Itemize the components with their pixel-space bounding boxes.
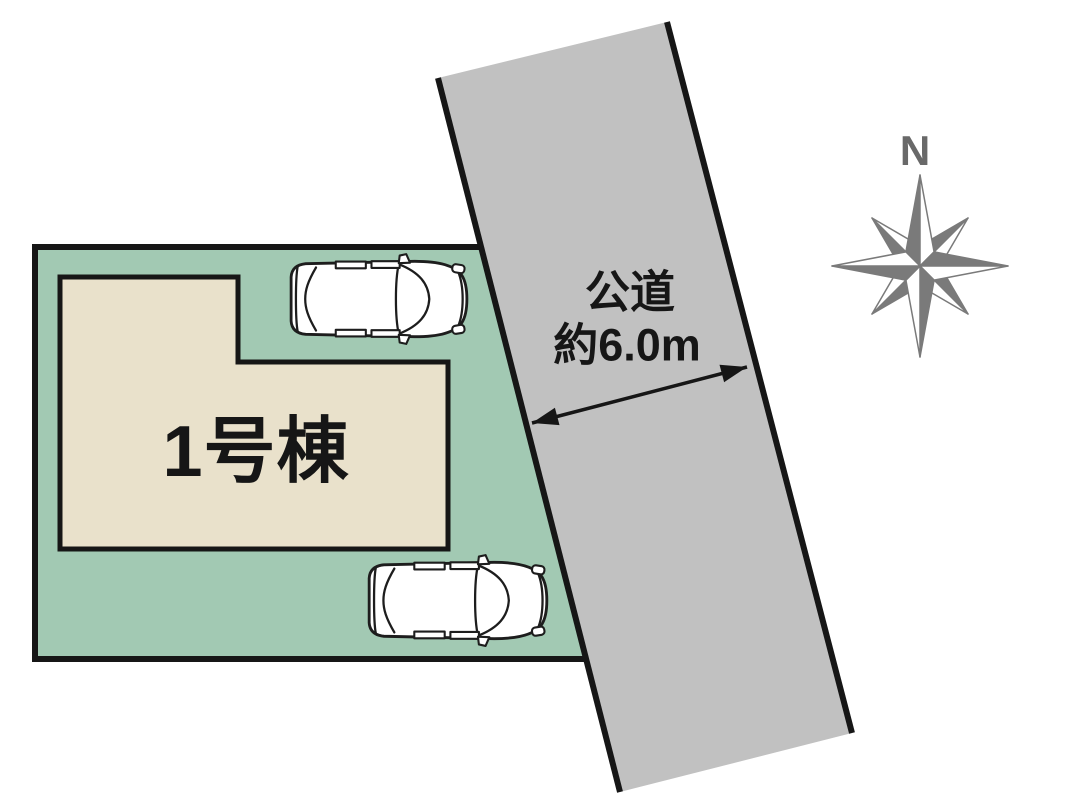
site-plan-drawing — [0, 0, 1066, 800]
car-icon — [369, 555, 547, 646]
road-width-label: 約6.0m — [553, 323, 701, 368]
site-plan-canvas: 1号棟 公道 約6.0m N — [0, 0, 1066, 800]
compass-rose-icon — [832, 175, 1008, 357]
compass-north-label: N — [900, 130, 930, 172]
road-label: 公道 — [585, 270, 675, 315]
car-icon — [291, 254, 467, 344]
building-label: 1号棟 — [162, 416, 349, 488]
